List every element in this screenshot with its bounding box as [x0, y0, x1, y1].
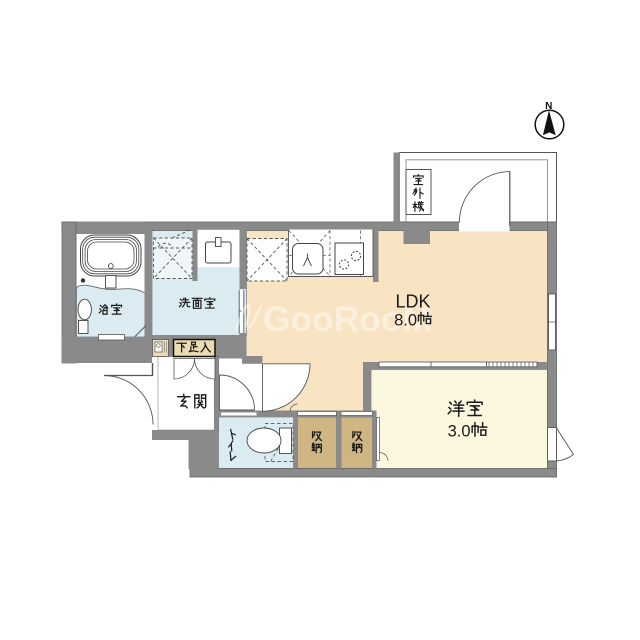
svg-text:8.0: 8.0 — [394, 312, 417, 330]
svg-text:N: N — [545, 101, 552, 112]
svg-text:3.0: 3.0 — [448, 423, 471, 441]
svg-text:LDK: LDK — [395, 292, 430, 312]
